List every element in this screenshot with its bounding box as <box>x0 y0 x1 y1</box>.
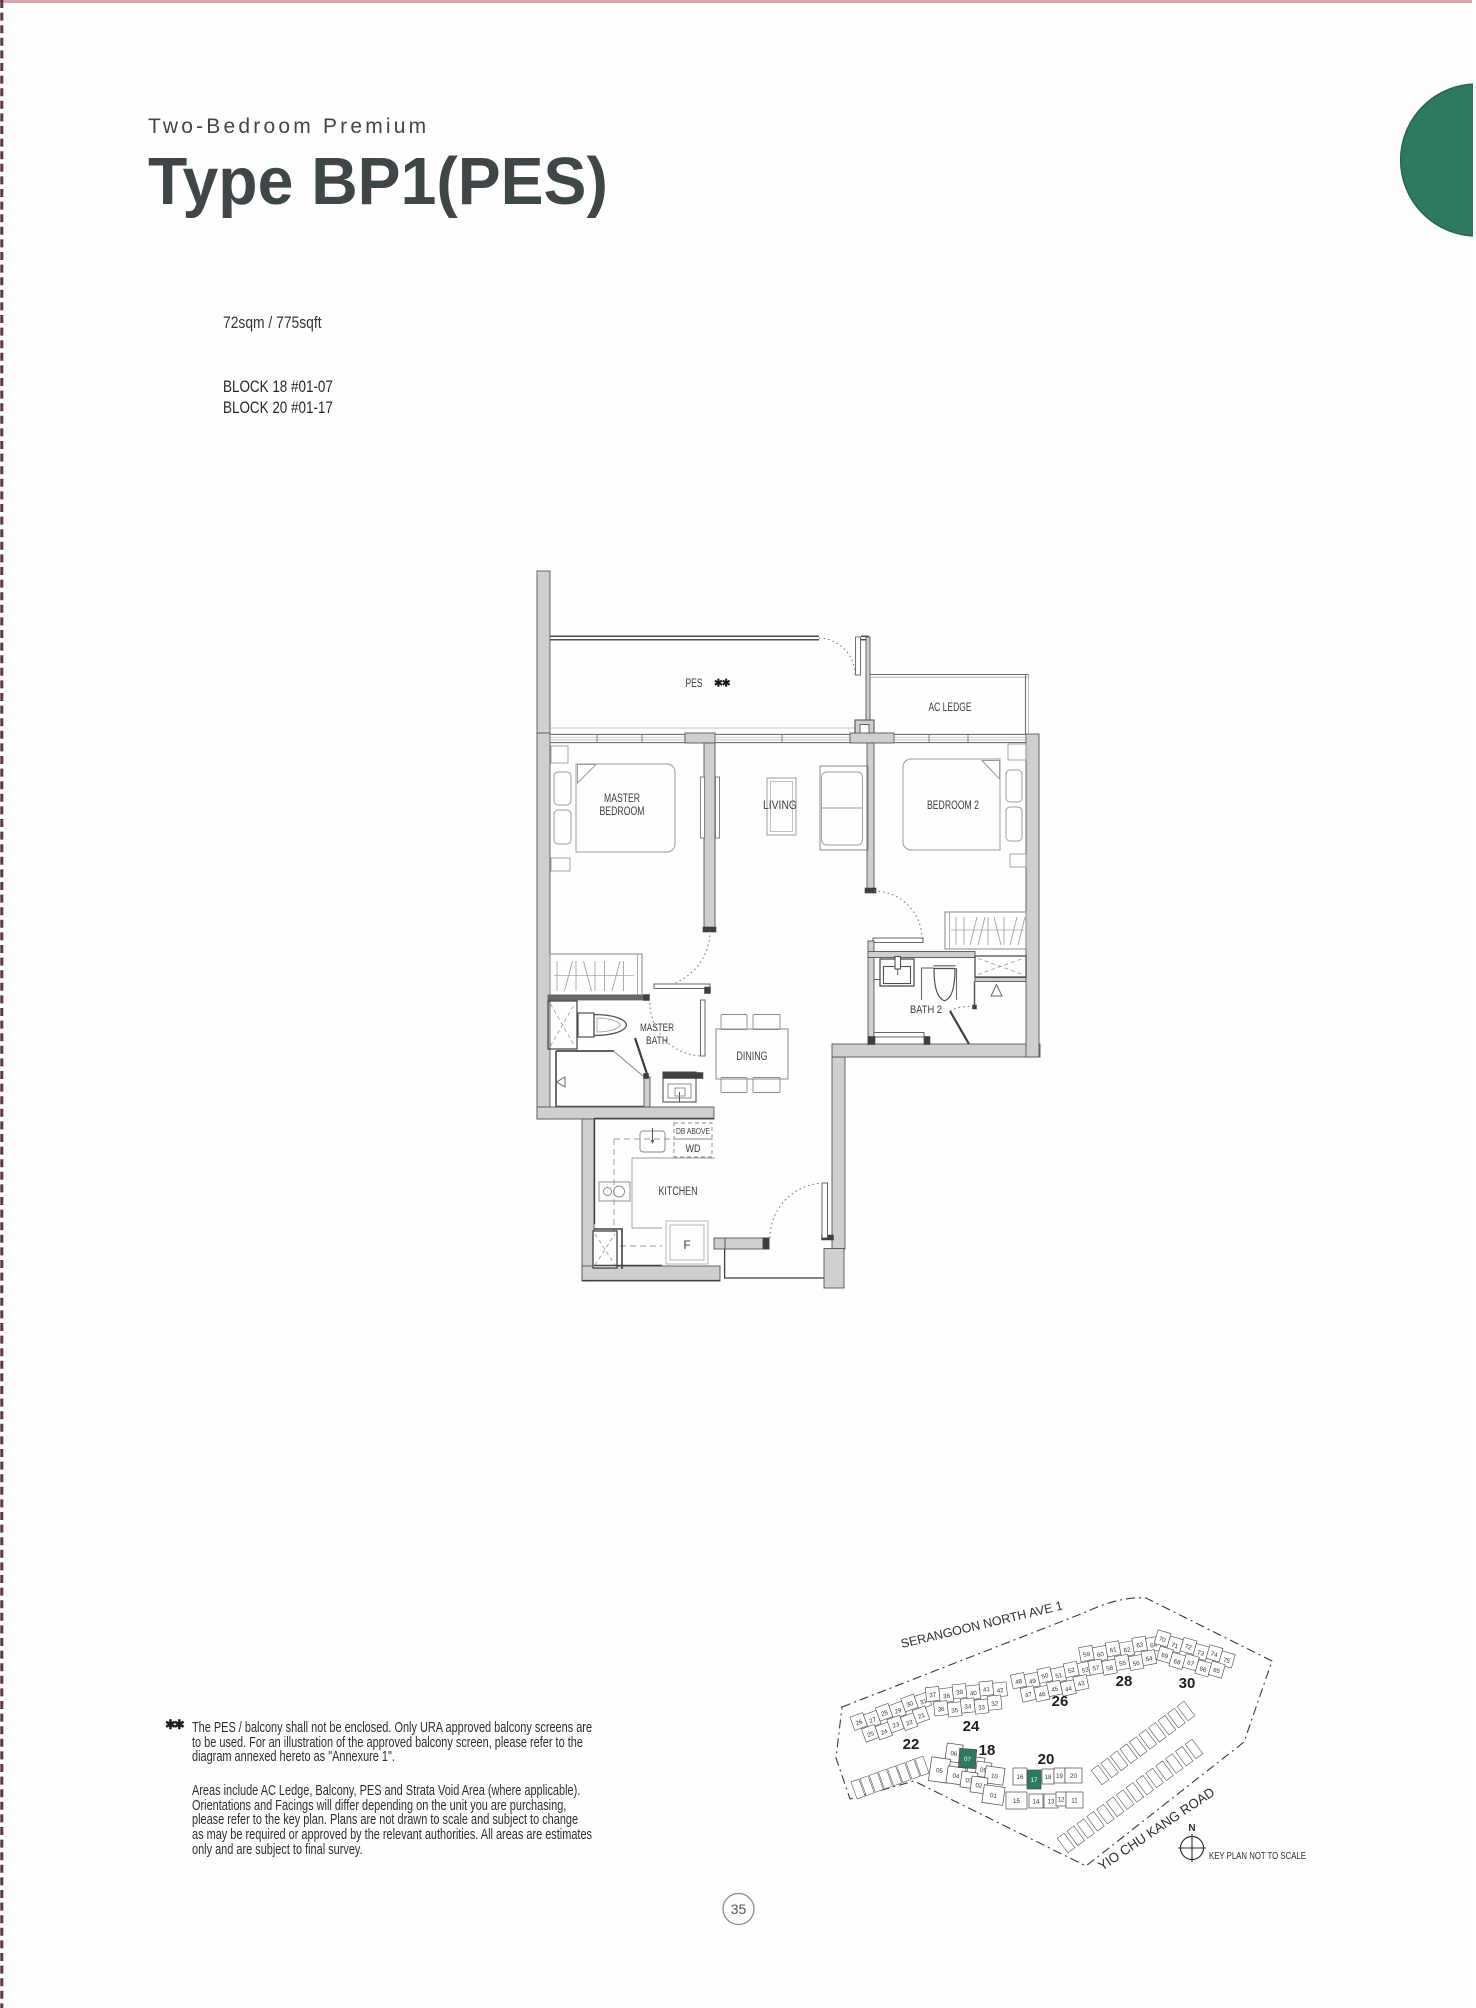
svg-text:42: 42 <box>996 1687 1004 1695</box>
svg-text:16: 16 <box>1017 1774 1024 1781</box>
svg-text:24: 24 <box>963 1718 980 1735</box>
svg-text:39: 39 <box>956 1689 964 1697</box>
svg-text:WD: WD <box>686 1143 701 1155</box>
svg-text:SERANGOON NORTH AVE 1: SERANGOON NORTH AVE 1 <box>899 1599 1064 1651</box>
svg-text:41: 41 <box>983 1686 991 1694</box>
svg-text:BEDROOM: BEDROOM <box>600 806 645 818</box>
svg-text:20: 20 <box>1038 1751 1055 1768</box>
svg-text:BEDROOM 2: BEDROOM 2 <box>927 800 979 812</box>
svg-text:BATH: BATH <box>646 1035 668 1047</box>
svg-text:MASTER: MASTER <box>604 793 640 805</box>
svg-text:34: 34 <box>964 1703 972 1711</box>
svg-text:13: 13 <box>1048 1799 1055 1806</box>
svg-text:DINING: DINING <box>737 1051 768 1063</box>
svg-text:26: 26 <box>1052 1693 1069 1710</box>
svg-text:22: 22 <box>903 1736 920 1753</box>
svg-text:BATH 2: BATH 2 <box>910 1004 942 1016</box>
svg-text:37: 37 <box>929 1692 937 1700</box>
svg-text:36: 36 <box>937 1706 945 1714</box>
svg-text:20: 20 <box>1070 1773 1077 1780</box>
svg-text:35: 35 <box>951 1707 959 1715</box>
svg-text:MASTER: MASTER <box>640 1022 674 1034</box>
svg-text:12: 12 <box>1058 1797 1065 1804</box>
svg-text:33: 33 <box>978 1704 986 1712</box>
svg-text:14: 14 <box>1033 1799 1040 1806</box>
svg-text:✱✱: ✱✱ <box>714 678 731 690</box>
svg-text:28: 28 <box>1116 1673 1133 1690</box>
svg-text:18: 18 <box>1045 1774 1052 1781</box>
svg-text:11: 11 <box>1071 1798 1078 1805</box>
svg-text:KEY PLAN NOT TO SCALE: KEY PLAN NOT TO SCALE <box>1209 1850 1306 1862</box>
svg-text:AC LEDGE: AC LEDGE <box>929 702 972 714</box>
svg-text:07: 07 <box>964 1756 972 1764</box>
svg-text:KITCHEN: KITCHEN <box>659 1186 698 1198</box>
svg-text:LIVING: LIVING <box>763 800 797 812</box>
svg-text:40: 40 <box>970 1690 978 1698</box>
svg-text:N: N <box>1188 1823 1195 1834</box>
svg-text:38: 38 <box>943 1693 951 1701</box>
svg-text:15: 15 <box>1013 1798 1020 1805</box>
svg-text:PES: PES <box>686 676 703 690</box>
svg-text:DB ABOVE: DB ABOVE <box>676 1126 710 1136</box>
svg-text:17: 17 <box>1031 1777 1038 1784</box>
svg-text:35: 35 <box>731 1901 747 1917</box>
svg-text:F: F <box>683 1238 690 1252</box>
svg-text:30: 30 <box>1179 1675 1196 1692</box>
svg-text:19: 19 <box>1056 1773 1063 1780</box>
svg-text:32: 32 <box>991 1700 999 1708</box>
svg-text:18: 18 <box>979 1742 996 1759</box>
